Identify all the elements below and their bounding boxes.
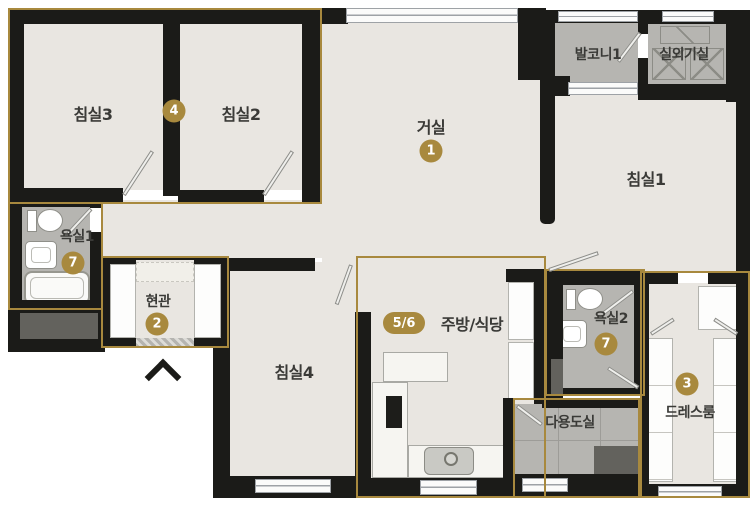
kitchen-stove <box>386 396 402 428</box>
bath2-toilet-tank <box>566 289 576 310</box>
wall <box>542 400 638 408</box>
bedrooms-marker[interactable]: 4 <box>163 100 186 123</box>
outdoor-unit-window <box>662 11 714 22</box>
bath1-label: 욕실1 <box>60 226 94 246</box>
wall <box>503 398 515 478</box>
bedroom2-label: 침실2 <box>221 101 260 125</box>
kitchen-window <box>420 480 477 495</box>
wall <box>736 10 750 488</box>
living-marker[interactable]: 1 <box>420 140 443 163</box>
wall <box>506 269 546 282</box>
wall <box>10 188 123 202</box>
wall <box>22 202 90 207</box>
utility-tile-seam <box>515 440 638 441</box>
wall <box>547 271 640 285</box>
wall <box>228 258 315 271</box>
hall-floor <box>103 200 322 258</box>
balcony1-window <box>558 11 638 22</box>
dressroom-label: 드레스룸 <box>665 402 715 422</box>
bedroom1-label: 침실1 <box>626 166 665 190</box>
kitchen-faucet-icon <box>444 452 458 466</box>
bedroom4-window <box>255 479 331 493</box>
bath1-sink <box>25 241 57 269</box>
kitchen-peninsula-counter <box>383 352 448 382</box>
utility-label: 다용도실 <box>545 412 595 432</box>
living-window <box>346 8 518 23</box>
wall <box>534 282 547 404</box>
wall <box>638 84 738 100</box>
bath2-label: 욕실2 <box>594 308 628 328</box>
kitchen-pantry-closet-2 <box>508 342 534 400</box>
wall <box>540 10 555 224</box>
outdoor-unit-label: 실외기실 <box>659 44 709 64</box>
bath2-marker[interactable]: 7 <box>595 333 618 356</box>
entrance-threshold <box>136 338 194 347</box>
balcony1-label: 발코니1 <box>575 44 621 64</box>
floor-plan: 침실3 침실2 거실 발코니1 실외기실 침실1 욕실1 현관 침실4 주방/식… <box>0 0 755 512</box>
bath1-marker[interactable]: 7 <box>62 252 85 275</box>
duct-shaft-opening <box>20 313 98 339</box>
entrance-closet-right <box>194 264 221 338</box>
bedroom1-balcony-window <box>568 82 638 95</box>
wall <box>10 10 24 202</box>
wall <box>10 202 22 308</box>
bath1-toilet-tank <box>27 210 37 232</box>
wall <box>90 202 103 208</box>
bedroom4-label: 침실4 <box>274 359 313 383</box>
kitchen-pantry-closet-1 <box>508 282 534 340</box>
kitchen-label: 주방/식당 <box>441 311 503 335</box>
kitchen-marker[interactable]: 5/6 <box>383 312 425 334</box>
entrance-label: 현관 <box>146 291 171 311</box>
bedroom3-label: 침실3 <box>73 101 112 125</box>
utility-window <box>522 478 568 492</box>
wall <box>547 285 563 355</box>
wall <box>640 284 649 498</box>
utility-dark-unit <box>594 446 638 474</box>
wall <box>178 190 264 202</box>
entrance-marker[interactable]: 2 <box>146 313 169 336</box>
wall <box>638 58 648 84</box>
bath2-toilet-bowl <box>577 288 603 310</box>
dressroom-wardrobe-right <box>713 338 738 482</box>
wall <box>302 10 322 202</box>
entry-arrow-icon <box>145 359 182 396</box>
outdoor-unit-duct <box>660 26 710 44</box>
wall <box>355 312 371 482</box>
living-label: 거실 <box>417 114 445 138</box>
duct-shaft-opening <box>551 359 563 395</box>
dressroom-marker[interactable]: 3 <box>676 373 699 396</box>
entrance-closet-left <box>110 264 136 338</box>
dressroom-window <box>658 486 722 498</box>
entrance-doormat <box>136 262 194 282</box>
wall <box>322 8 348 24</box>
wall <box>708 271 742 284</box>
wall <box>640 271 678 284</box>
